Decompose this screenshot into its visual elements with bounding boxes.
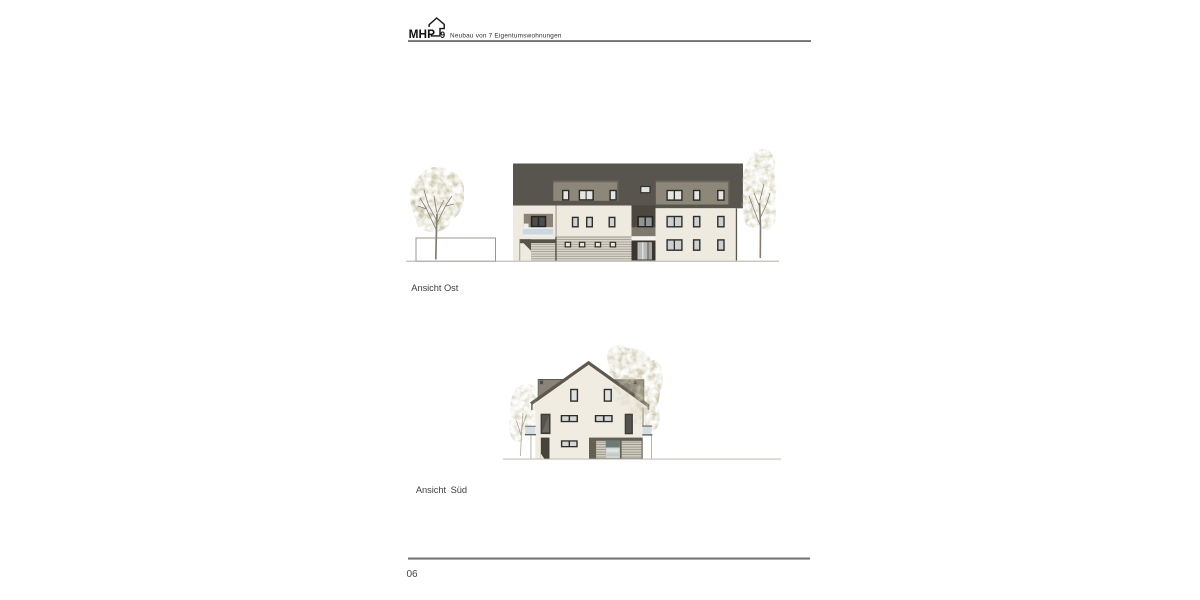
- svg-text:Neubau von 7 Eigentumswohnunge: Neubau von 7 Eigentumswohnungen: [450, 33, 562, 40]
- svg-text:MHP: MHP: [409, 27, 436, 41]
- svg-text:Ansicht Ost: Ansicht Ost: [411, 283, 458, 293]
- svg-text:Ansicht Süd: Ansicht Süd: [416, 485, 467, 495]
- svg-text:9: 9: [440, 30, 445, 40]
- svg-text:06: 06: [407, 569, 419, 580]
